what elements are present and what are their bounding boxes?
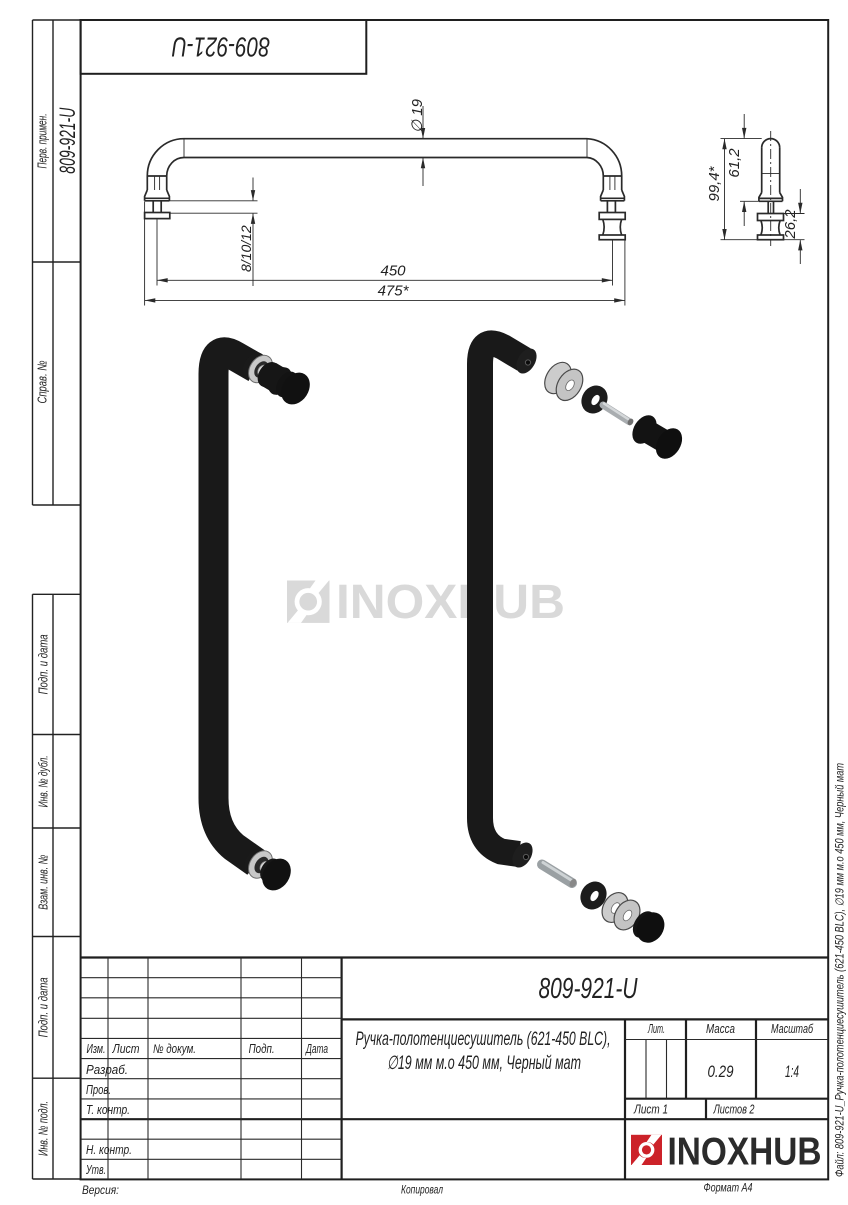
svg-text:Пров.: Пров. xyxy=(86,1083,111,1097)
svg-text:∅19 мм м.о 450 мм, Черный мат: ∅19 мм м.о 450 мм, Черный мат xyxy=(387,1053,581,1074)
svg-text:∅ 19: ∅ 19 xyxy=(409,98,426,133)
svg-text:Масса: Масса xyxy=(706,1022,735,1036)
svg-text:475*: 475* xyxy=(378,283,410,300)
svg-text:Лист: Лист xyxy=(112,1042,140,1056)
svg-text:Подп. и дата: Подп. и дата xyxy=(36,977,51,1037)
svg-text:Разраб.: Разраб. xyxy=(86,1063,128,1077)
svg-text:Копировал: Копировал xyxy=(401,1183,443,1197)
svg-text:Взам. инв. №: Взам. инв. № xyxy=(36,855,51,910)
svg-text:8/10/12: 8/10/12 xyxy=(238,225,254,272)
svg-text:Н. контр.: Н. контр. xyxy=(86,1143,132,1157)
svg-text:99,4*: 99,4* xyxy=(706,165,723,201)
svg-text:Инв. № подл.: Инв. № подл. xyxy=(36,1101,51,1156)
svg-text:Лит.: Лит. xyxy=(647,1022,665,1036)
svg-text:Инв. № дубл.: Инв. № дубл. xyxy=(36,755,51,807)
svg-text:Файл: 809-921-U_Ручка-полотенц: Файл: 809-921-U_Ручка-полотенциесушитель… xyxy=(835,763,847,1177)
svg-text:№ докум.: № докум. xyxy=(153,1042,196,1056)
svg-text:Подп.: Подп. xyxy=(249,1042,275,1056)
svg-text:450: 450 xyxy=(380,263,406,280)
svg-text:0.29: 0.29 xyxy=(708,1062,734,1081)
svg-text:Ручка-полотенциесушитель (621-: Ручка-полотенциесушитель (621-450 BLC), xyxy=(356,1029,611,1050)
svg-text:Справ. №: Справ. № xyxy=(35,361,50,404)
svg-text:809-921-U: 809-921-U xyxy=(55,108,80,174)
svg-text:Утв.: Утв. xyxy=(85,1163,106,1177)
svg-text:Масштаб: Масштаб xyxy=(771,1022,814,1036)
svg-text:Версия:: Версия: xyxy=(82,1183,119,1197)
svg-text:Листов 2: Листов 2 xyxy=(713,1103,755,1117)
svg-text:Изм.: Изм. xyxy=(87,1042,106,1056)
svg-text:Формат А4: Формат А4 xyxy=(704,1181,753,1195)
svg-text:1:4: 1:4 xyxy=(785,1062,799,1081)
svg-text:Лист 1: Лист 1 xyxy=(633,1103,668,1117)
svg-text:Подп. и дата: Подп. и дата xyxy=(36,634,51,694)
svg-text:Т. контр.: Т. контр. xyxy=(86,1103,130,1117)
svg-text:61,2: 61,2 xyxy=(726,148,743,178)
svg-text:INOXHUB: INOXHUB xyxy=(668,1130,822,1173)
svg-text:Дата: Дата xyxy=(305,1042,328,1056)
svg-text:809-921-U: 809-921-U xyxy=(171,32,270,63)
svg-text:809-921-U: 809-921-U xyxy=(539,973,639,1005)
svg-text:Перв. примен.: Перв. примен. xyxy=(35,114,50,169)
svg-text:26,2: 26,2 xyxy=(782,209,799,240)
svg-text:INOXHUB: INOXHUB xyxy=(336,576,565,629)
